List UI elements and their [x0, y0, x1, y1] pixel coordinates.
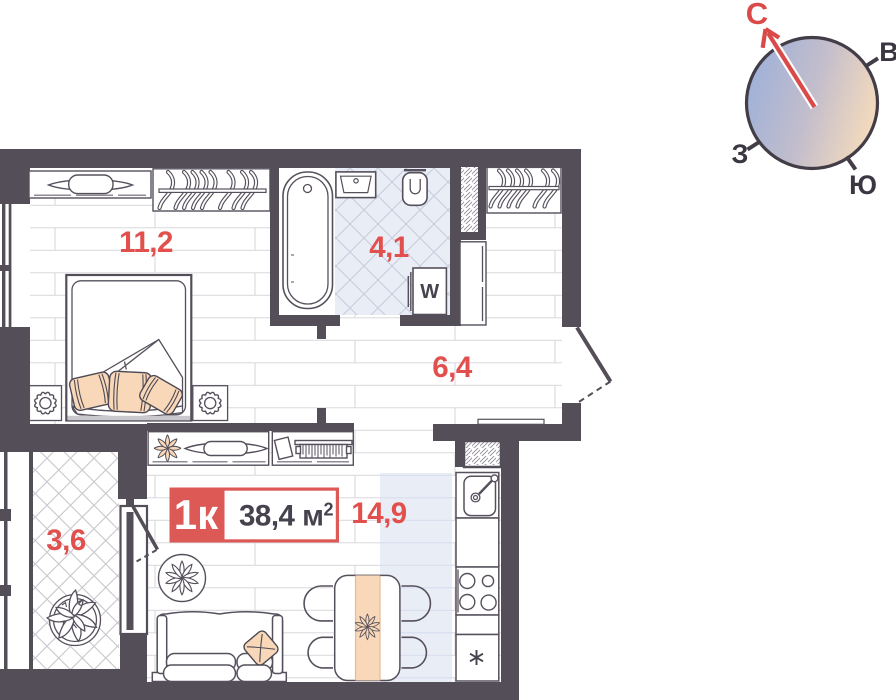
svg-text:3,6: 3,6: [46, 524, 86, 557]
svg-text:С: С: [746, 0, 768, 31]
svg-text:6,4: 6,4: [432, 351, 473, 384]
svg-text:1к: 1к: [174, 491, 219, 538]
svg-text:W: W: [420, 281, 439, 303]
svg-text:4,1: 4,1: [369, 231, 409, 264]
svg-text:В: В: [879, 37, 896, 67]
svg-text:Ю: Ю: [849, 170, 877, 200]
svg-text:11,2: 11,2: [119, 226, 173, 259]
svg-text:14,9: 14,9: [351, 497, 407, 530]
svg-text:З: З: [732, 139, 749, 169]
svg-text:38,4 м2: 38,4 м2: [239, 500, 333, 533]
